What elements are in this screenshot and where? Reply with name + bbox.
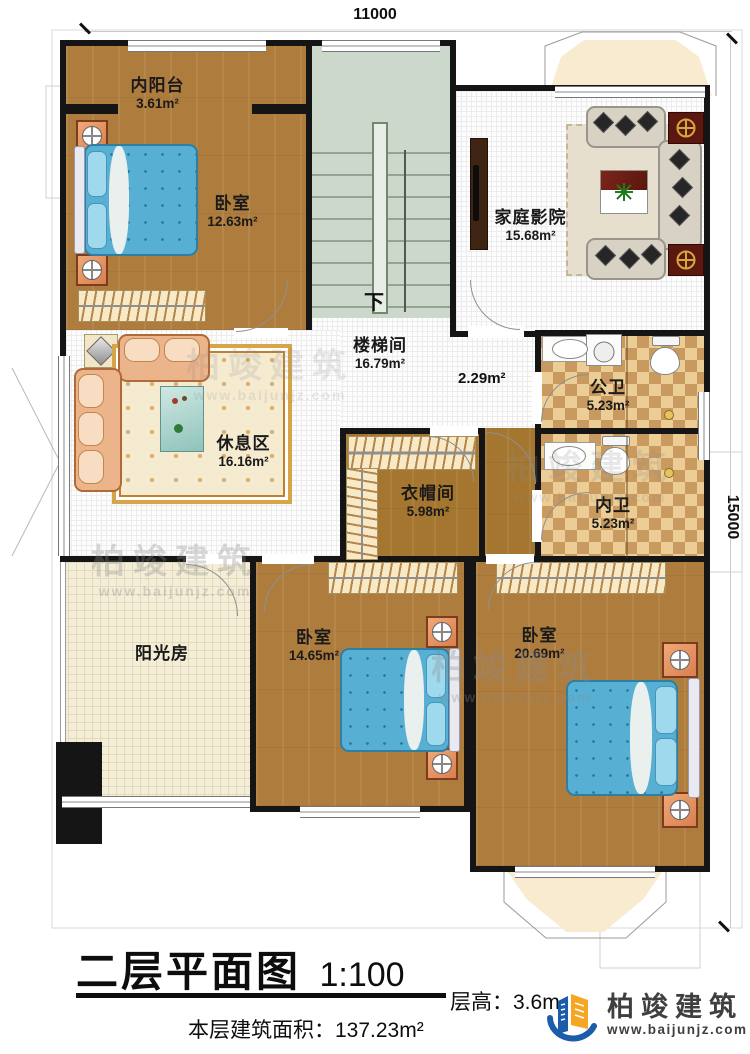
sofa-cushion — [78, 450, 104, 484]
bed-pillow — [655, 686, 677, 734]
wardrobe-symbol — [328, 562, 458, 594]
door-gap-cloakroom — [430, 426, 478, 436]
room-area: 5.98m² — [378, 504, 478, 520]
room-label-inner-balcony: 内阳台 3.61m² — [110, 76, 205, 113]
room-area: 3.61m² — [110, 96, 205, 112]
room-label-bedroom-master: 卧室 20.69m² — [492, 626, 587, 663]
lamp-icon — [82, 260, 102, 280]
flower-icon — [174, 424, 183, 433]
plant-side-table-symbol — [668, 112, 704, 144]
page-title: 二层平面图 — [76, 948, 301, 995]
wardrobe-symbol — [78, 290, 206, 322]
title-underline — [76, 993, 446, 998]
blanket-fold — [630, 682, 652, 794]
door-gap-sunroom — [186, 554, 242, 564]
room-name: 内阳台 — [110, 76, 205, 96]
room-label-sunroom: 阳光房 — [112, 644, 212, 664]
sofa-cushion — [124, 338, 160, 362]
nightstand-symbol — [426, 748, 458, 780]
floor-height-label: 层高：3.6m — [450, 986, 560, 1016]
window-bedroom-mid-bottom — [300, 806, 420, 818]
window-bedroom-master-bay — [515, 866, 655, 878]
stair-direction-line — [404, 150, 406, 312]
room-name: 卧室 — [185, 194, 280, 214]
room-label-home-theater: 家庭影院 15.68m² — [478, 208, 583, 245]
room-name: 楼梯间 — [330, 336, 430, 356]
washer-drum-icon — [594, 341, 615, 362]
dimension-top: 11000 — [335, 6, 415, 24]
plan-scale: 1:100 — [319, 956, 404, 994]
room-name: 阳光房 — [112, 644, 212, 664]
lamp-icon — [432, 622, 452, 642]
room-label-bedroom-mid: 卧室 14.65m² — [268, 628, 360, 665]
room-name: 衣帽间 — [378, 484, 478, 504]
bed-pillow — [426, 654, 446, 698]
sofa-cushion — [78, 412, 104, 446]
window-bath-right — [698, 392, 710, 460]
room-name: 卧室 — [492, 626, 587, 646]
window-lounge-left — [58, 356, 70, 556]
bed-headboard — [74, 146, 85, 254]
plant-side-table-symbol — [668, 244, 704, 276]
brand-name: 柏竣建筑 — [607, 993, 748, 1021]
table-decor-dot — [182, 396, 187, 401]
nightstand-symbol — [76, 254, 108, 286]
bed-pillow — [426, 702, 446, 746]
room-area: 16.79m² — [330, 356, 430, 372]
table-decor-dot — [172, 398, 178, 404]
lamp-icon — [432, 754, 452, 774]
corridor-area-label: 2.29m² — [458, 370, 528, 387]
blanket-fold — [109, 146, 129, 254]
room-name: 公卫 — [568, 378, 648, 398]
washing-machine-symbol — [586, 334, 622, 366]
lamp-icon — [670, 800, 690, 820]
sink-symbol — [552, 446, 586, 466]
room-area: 20.69m² — [492, 646, 587, 662]
brand-logo: 柏竣建筑 www.baijunjz.com — [545, 986, 748, 1044]
bed-pillow — [87, 203, 107, 249]
toilet-tank — [652, 336, 680, 346]
blanket-fold — [404, 650, 424, 750]
room-name: 家庭影院 — [478, 208, 583, 228]
room-area: 15.68m² — [478, 228, 583, 244]
bed-pillow — [87, 151, 107, 197]
brand-logo-icon — [545, 986, 599, 1044]
sofa-cushion — [78, 374, 104, 408]
sink-symbol — [552, 339, 588, 359]
stairs-direction-label: 下 — [364, 286, 384, 315]
sunroom-glass-wall-bottom — [62, 796, 250, 808]
brand-website: www.baijunjz.com — [607, 1022, 748, 1037]
room-name: 卧室 — [268, 628, 360, 648]
nightstand-symbol — [662, 642, 698, 678]
bed-headboard — [688, 678, 700, 798]
lamp-icon — [670, 650, 690, 670]
room-label-bedroom-top: 卧室 12.63m² — [185, 194, 280, 231]
room-label-public-bath: 公卫 5.23m² — [568, 378, 648, 415]
room-label-cloakroom: 衣帽间 5.98m² — [378, 484, 478, 521]
window-theater-bay — [555, 86, 705, 98]
room-label-inner-bath: 内卫 5.23m² — [572, 496, 654, 533]
bed-pillow — [655, 738, 677, 786]
plant-icon — [614, 182, 634, 202]
plant-icon — [677, 119, 696, 138]
room-area: 14.65m² — [268, 648, 360, 664]
balcony-divider-right — [252, 104, 312, 114]
towel-knob-icon — [664, 468, 674, 478]
floor-plan-canvas: 下 — [0, 0, 750, 1054]
room-name: 内卫 — [572, 496, 654, 516]
coffee-table-symbol — [600, 170, 648, 214]
towel-knob-icon — [664, 410, 674, 420]
nightstand-symbol — [426, 616, 458, 648]
door-gap-bedroom-mid — [262, 554, 314, 564]
room-label-stairwell: 楼梯间 16.79m² — [330, 336, 430, 373]
floor-area-label: 本层建筑面积：137.23m² — [188, 1014, 424, 1044]
room-name: 休息区 — [196, 434, 291, 454]
sofa-cushion — [164, 338, 200, 362]
dimension-right: 15000 — [723, 487, 741, 547]
plant-icon — [677, 251, 696, 270]
wardrobe-symbol — [346, 468, 378, 560]
bed-headboard — [449, 648, 460, 752]
window-balcony-top — [128, 40, 266, 52]
room-area: 5.23m² — [572, 516, 654, 532]
brand-text: 柏竣建筑 www.baijunjz.com — [607, 993, 748, 1036]
room-area: 12.63m² — [185, 214, 280, 230]
window-stairs-top — [322, 40, 440, 52]
room-area: 5.23m² — [568, 398, 648, 414]
wall-corner-block — [56, 742, 102, 844]
lamp-icon — [82, 126, 102, 146]
sunroom-glass-wall-left — [60, 562, 66, 742]
room-label-lounge: 休息区 16.16m² — [196, 434, 291, 471]
title-block: 二层平面图 1:100 — [76, 938, 405, 999]
room-area: 16.16m² — [196, 454, 291, 470]
toilet-symbol — [650, 347, 680, 375]
